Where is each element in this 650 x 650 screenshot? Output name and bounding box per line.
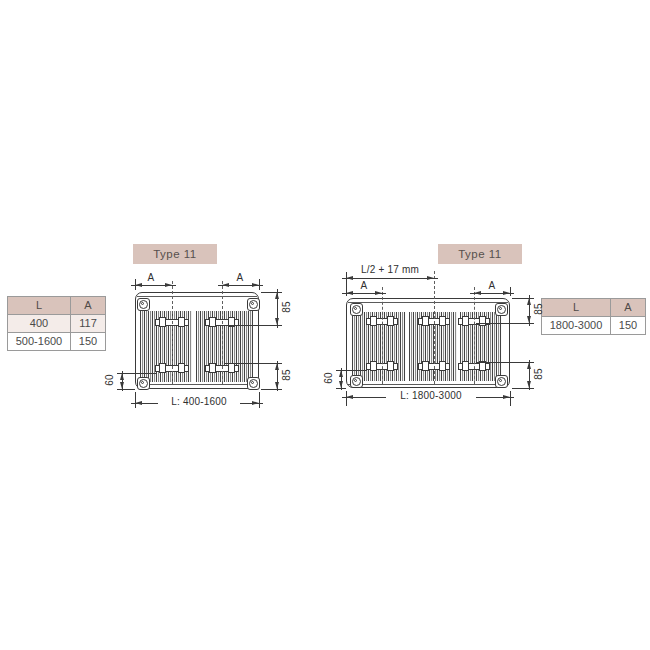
col-header-A: A (610, 299, 645, 316)
arrowhead (346, 291, 353, 295)
bracket-centerline (434, 271, 435, 384)
dim-label-85-bottom: 85 (280, 367, 294, 383)
cell-length: 500-1600 (8, 333, 70, 350)
corner-plug (137, 377, 150, 390)
corner-plug (350, 375, 363, 388)
table-row: 1800-3000 150 (542, 316, 645, 334)
dim-label-length: L: 1800-3000 (386, 390, 476, 402)
left-dimension-table: L A 400 117 500-1600 150 (7, 296, 106, 351)
corner-plug (350, 303, 363, 316)
dim-line-center-bracket (342, 278, 438, 279)
panel-bottom-seam (348, 384, 508, 385)
arrowhead (346, 395, 353, 399)
extension-line (476, 362, 534, 363)
arrowhead (527, 362, 531, 369)
arrowhead (427, 276, 434, 280)
table-row: 500-1600 150 (8, 332, 105, 350)
col-header-A: A (70, 297, 105, 314)
arrowhead (135, 401, 142, 405)
extension-line (510, 391, 511, 406)
dim-label-a-left: A (143, 272, 159, 284)
dim-label-60: 60 (103, 372, 117, 388)
cell-a-value: 117 (70, 315, 105, 332)
right-type-label: Type 11 (438, 244, 522, 264)
right-dimension-table: L A 1800-3000 150 (541, 298, 646, 335)
arrowhead (527, 381, 531, 388)
corner-plug (137, 298, 150, 311)
dim-label-85-top: 85 (532, 301, 546, 317)
extension-line (224, 363, 282, 364)
arrowhead (375, 291, 382, 295)
dim-label-85-bottom: 85 (532, 366, 546, 382)
cell-length: 400 (8, 315, 70, 332)
arrowhead (252, 401, 259, 405)
cell-a-value: 150 (610, 317, 645, 334)
arrowhead (165, 283, 172, 287)
arrowhead (339, 370, 343, 377)
extension-line (512, 298, 534, 299)
extension-line (117, 389, 135, 390)
bracket-centerline (172, 281, 173, 384)
extension-line (261, 389, 282, 390)
cell-length: 1800-3000 (542, 317, 610, 334)
arrowhead (120, 382, 124, 389)
left-type-label: Type 11 (133, 244, 217, 264)
arrowhead (222, 283, 229, 287)
bracket-centerline (474, 287, 475, 384)
arrowhead (275, 382, 279, 389)
arrowhead (503, 291, 510, 295)
dim-label-a-right: A (232, 272, 248, 284)
arrowhead (527, 316, 531, 323)
extension-line (261, 292, 282, 293)
dim-label-center-bracket: L/2 + 17 mm (350, 264, 430, 276)
arrowhead (527, 298, 531, 305)
extension-line (512, 388, 534, 389)
arrowhead (275, 363, 279, 370)
table-row: 400 117 (8, 314, 105, 332)
col-header-L: L (542, 299, 610, 316)
extension-line (259, 392, 260, 408)
arrowhead (120, 373, 124, 380)
arrowhead (135, 283, 142, 287)
dim-label-60: 60 (322, 370, 336, 386)
arrowhead (474, 291, 481, 295)
arrowhead (346, 276, 353, 280)
table-header-row: L A (8, 297, 105, 314)
dim-label-a-left: A (356, 280, 372, 292)
radiator-spec-sheet: Type 11 Type 11 L A 400 117 500-1600 150… (0, 0, 650, 650)
corner-plug (247, 377, 260, 390)
arrowhead (339, 381, 343, 388)
panel-bottom-seam (137, 384, 257, 385)
bracket-centerline (222, 281, 223, 384)
corner-plug (495, 303, 508, 316)
extension-line (476, 323, 534, 324)
cell-a-value: 150 (70, 333, 105, 350)
bracket-centerline (382, 287, 383, 384)
panel-top-seam (348, 302, 508, 303)
extension-line (510, 287, 511, 296)
col-header-L: L (8, 297, 70, 314)
arrowhead (275, 292, 279, 299)
arrowhead (252, 283, 259, 287)
table-header-row: L A (542, 299, 645, 316)
dim-label-length: L: 400-1600 (158, 396, 240, 408)
corner-plug (495, 375, 508, 388)
panel-top-seam (137, 296, 257, 297)
extension-line (346, 391, 347, 406)
dim-label-a-right: A (484, 280, 500, 292)
arrowhead (503, 395, 510, 399)
arrowhead (275, 318, 279, 325)
corner-plug (247, 298, 260, 311)
extension-line (224, 325, 282, 326)
dim-label-85-top: 85 (280, 299, 294, 315)
